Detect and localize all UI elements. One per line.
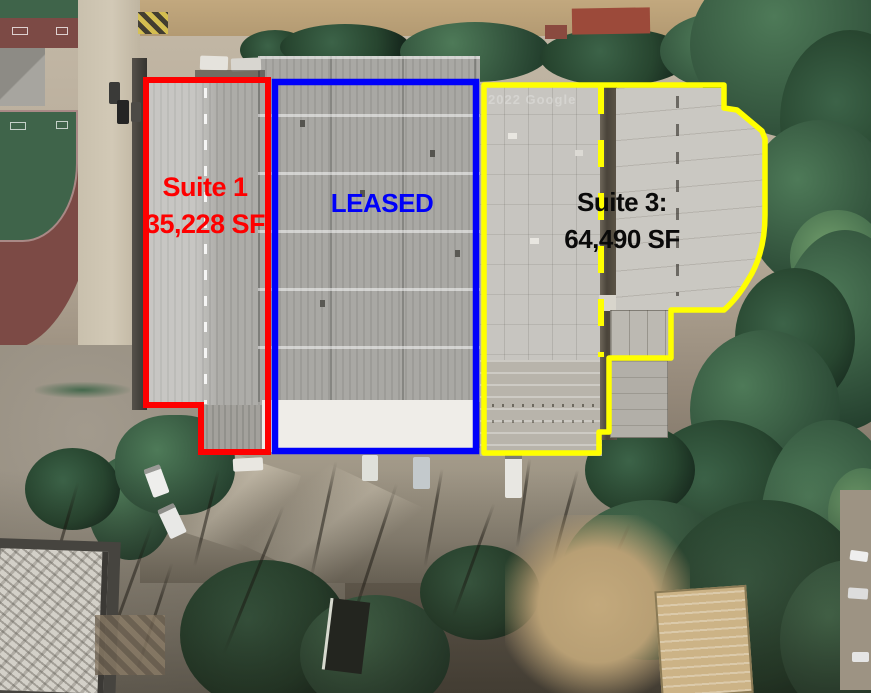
leased-outline bbox=[275, 82, 476, 451]
suite3-name: Suite 3: bbox=[540, 184, 704, 221]
suite1-area: 35,228 SF bbox=[138, 206, 272, 243]
suite1-label: Suite 1 35,228 SF bbox=[138, 169, 272, 243]
aerial-site-photo: 2022 Google Suite 1 35,228 SF LEASED Sui… bbox=[0, 0, 871, 693]
suite3-area: 64,490 SF bbox=[540, 221, 704, 258]
suite3-outline bbox=[484, 85, 765, 453]
suite1-name: Suite 1 bbox=[138, 169, 272, 206]
leased-text: LEASED bbox=[315, 185, 449, 222]
suite-overlay-layer bbox=[0, 0, 871, 693]
suite1-outline bbox=[146, 80, 268, 452]
leased-label: LEASED bbox=[315, 185, 449, 222]
suite3-label: Suite 3: 64,490 SF bbox=[540, 184, 704, 258]
